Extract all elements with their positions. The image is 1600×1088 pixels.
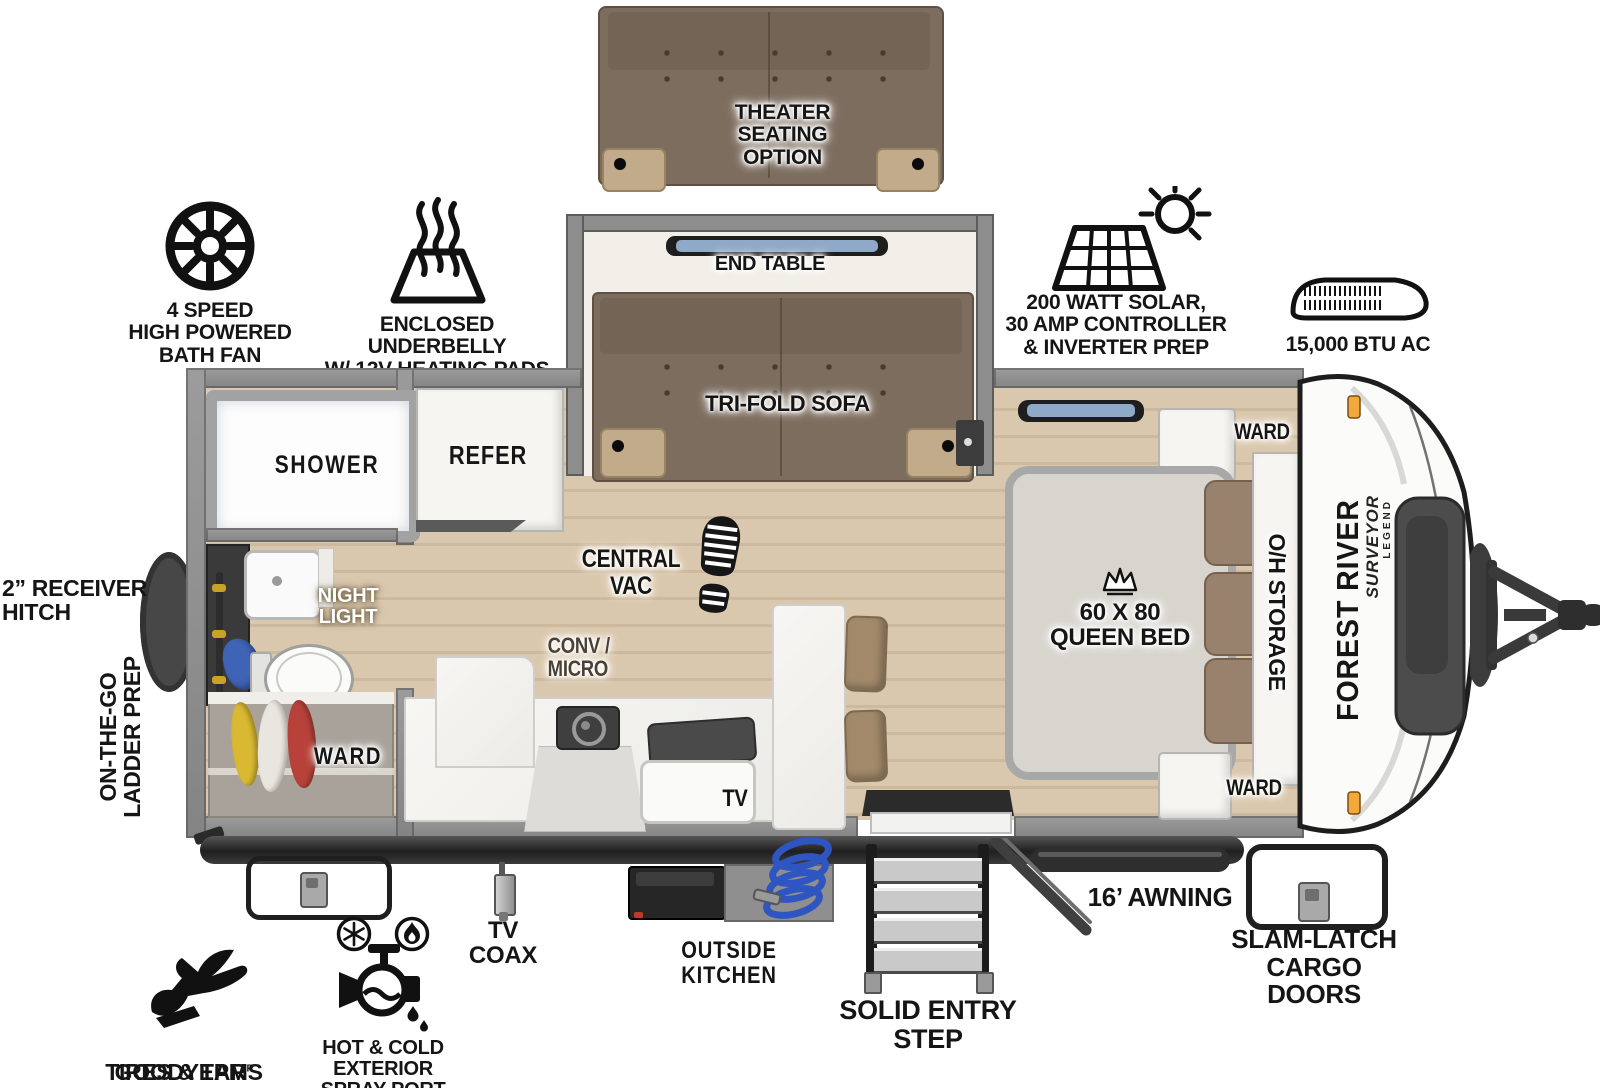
- front-ward-bottom-label: WARD: [1224, 776, 1284, 799]
- clearance-marker: [1348, 396, 1360, 418]
- entry-threshold: [870, 812, 1012, 834]
- front-ward-bottom: [1158, 752, 1232, 820]
- solar-prep-label: 200 WATT SOLAR, 30 AMP CONTROLLER & INVE…: [992, 292, 1240, 359]
- outside-kitchen-griddle-lid: [636, 872, 714, 886]
- armrest-bolt: [912, 158, 924, 170]
- spray-port-faucet-icon: [334, 944, 434, 1036]
- spray-port-label: HOT & COLD EXTERIOR SPRAY PORT: [272, 1038, 494, 1088]
- ac-unit-label: 15,000 BTU AC: [1278, 334, 1438, 356]
- floorplan: THEATER SEATING OPTION 4 SPEED HIGH POWE…: [0, 0, 1600, 1088]
- slam-latch-handle: [1298, 882, 1330, 922]
- night-light-label: NIGHT LIGHT: [300, 586, 396, 628]
- tri-fold-sofa-seam: [780, 298, 782, 476]
- range-front: [524, 746, 646, 832]
- entry-step-label: SOLID ENTRY STEP: [836, 996, 1020, 1053]
- refrigerator-label: REFER: [428, 442, 549, 470]
- shower-wall: [206, 528, 398, 542]
- conv-micro-label: CONV / MICRO: [548, 634, 629, 681]
- ac-unit-icon: [1283, 266, 1433, 330]
- theater-armrest-left: [602, 148, 666, 192]
- heated-underbelly-icon: [378, 196, 498, 308]
- bath-sink-drain: [272, 576, 282, 586]
- slideout-window-glass: [676, 240, 878, 252]
- ladder-prep-label: ON-THE-GO LADDER PREP: [96, 632, 148, 842]
- wall-rear: [186, 368, 206, 838]
- bath-fan-label: 4 SPEED HIGH POWERED BATH FAN: [108, 300, 312, 367]
- theater-armrest-right: [876, 148, 940, 192]
- goodyear-wingfoot-icon: [146, 938, 256, 1038]
- front-cap-branding: FOREST RIVER SURVEYOR LEGEND: [1330, 485, 1394, 735]
- cargo-doors-label: SLAM-LATCH CARGO DOORS: [1222, 926, 1406, 1009]
- media-cabinet-knob: [964, 438, 972, 446]
- cargo-door-latch-inner: [306, 878, 318, 888]
- armrest-bolt: [612, 440, 624, 452]
- end-table-label: END TABLE: [690, 254, 850, 275]
- wall-top-rear: [186, 368, 582, 388]
- slideout-wall-top: [566, 214, 994, 232]
- tri-fold-sofa-label: TRI-FOLD SOFA: [700, 392, 875, 415]
- shower-label: SHOWER: [264, 452, 390, 479]
- burner-center: [581, 721, 590, 730]
- kitchen-cabinet-tall: [435, 656, 535, 768]
- hitch-a-frame: [1470, 540, 1600, 690]
- bar-stool: [844, 709, 888, 782]
- tv-coax-connector: [494, 874, 516, 916]
- theater-seating-label: THEATER SEATING OPTION: [690, 102, 875, 169]
- brand-trim: LEGEND: [1382, 499, 1393, 559]
- slam-latch-handle-inner: [1305, 889, 1319, 901]
- queen-bed-label: 60 X 80 QUEEN BED: [1030, 600, 1210, 651]
- towel-hook: [212, 676, 226, 684]
- armrest-bolt: [942, 440, 954, 452]
- tv-label: TV: [706, 786, 765, 811]
- brand-make: FOREST RIVER: [1330, 495, 1366, 725]
- sofa-armrest-left: [600, 428, 666, 478]
- slideout-wall-left: [566, 214, 584, 476]
- towel-hook: [212, 584, 226, 592]
- wall-top-front: [994, 368, 1304, 388]
- griddle-knob: [634, 912, 643, 918]
- front-ward-top-label: WARD: [1232, 420, 1292, 443]
- entry-steps: [866, 844, 990, 992]
- goodyear-sub-label: TIRES & TPMS: [94, 1060, 274, 1084]
- wall-bottom-front: [1014, 816, 1304, 838]
- peninsula-counter: [772, 604, 846, 830]
- awning-label: 16’ AWNING: [1078, 884, 1242, 912]
- central-vac-label: CENTRAL VAC: [576, 546, 685, 599]
- bedroom-window-glass: [1027, 404, 1135, 417]
- solar-prep-icon: [1045, 186, 1215, 308]
- towel-hook: [212, 630, 226, 638]
- brand-series: SURVEYOR: [1363, 495, 1383, 598]
- bath-ward-label: WARD: [309, 744, 386, 769]
- crown-icon: [1100, 566, 1140, 596]
- receiver-hitch-label: 2” RECEIVER HITCH: [2, 576, 158, 625]
- overhead-storage-label: O/H STORAGE: [1265, 527, 1289, 697]
- refrigerator-door-edge: [416, 520, 526, 532]
- burner: [572, 712, 606, 746]
- coiled-hose-icon: [752, 832, 842, 924]
- bath-fan-icon: [162, 198, 258, 294]
- theater-sofa-tufts: [640, 40, 902, 94]
- outside-kitchen-label: OUTSIDE KITCHEN: [637, 938, 820, 989]
- clearance-marker: [1348, 792, 1360, 814]
- bar-stool: [844, 615, 889, 692]
- tv-coax-label: TV COAX: [458, 918, 548, 969]
- armrest-bolt: [614, 158, 626, 170]
